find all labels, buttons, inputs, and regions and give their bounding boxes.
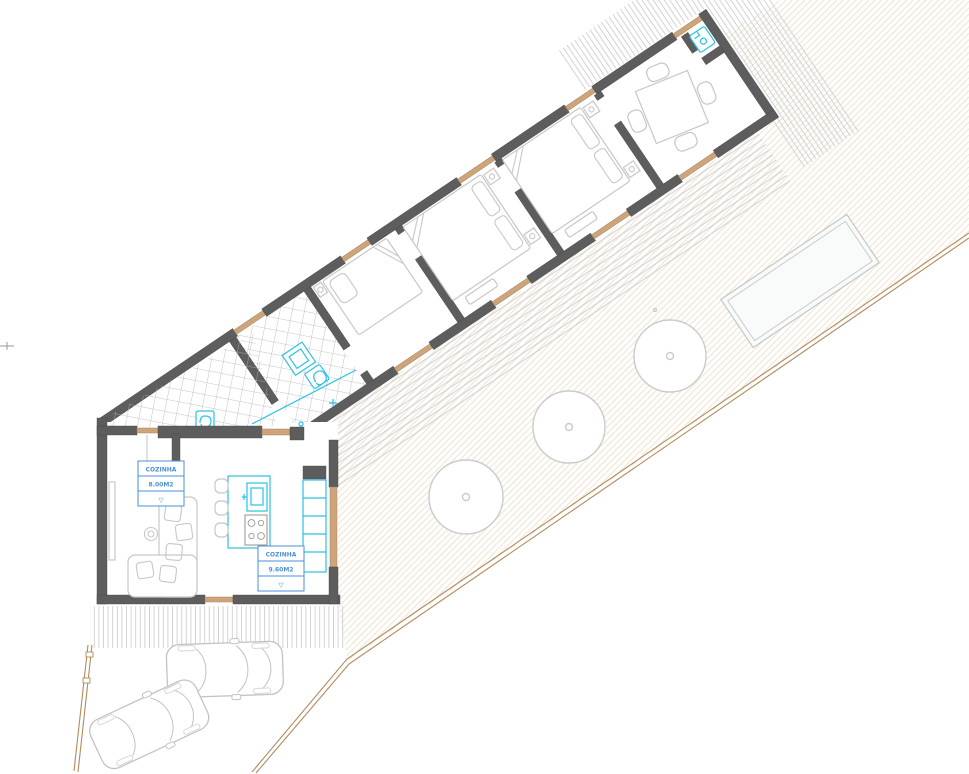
wedge-bathroom-tiles [110, 333, 277, 427]
room-name: COZINHA [266, 552, 297, 559]
tree-center [667, 353, 674, 360]
stool [215, 501, 228, 515]
entry-threshold [262, 429, 290, 435]
area-label-2: COZINHA 9.60M2 ▽ [258, 546, 304, 591]
tv-bench [109, 482, 115, 560]
bottom-deck-steps [90, 606, 345, 648]
stool [215, 479, 228, 493]
small-dot [654, 309, 657, 312]
room-name: COZINHA [146, 467, 177, 474]
tree-center [463, 494, 470, 501]
level-symbol: ▽ [279, 581, 284, 589]
door-threshold [137, 428, 158, 433]
area-label-1: COZINHA 8.00M2 ▽ [138, 461, 184, 506]
boundary-gate-tick [86, 652, 93, 657]
room-area: 8.00M2 [149, 482, 174, 489]
tree-center [566, 424, 573, 431]
door-threshold [205, 597, 233, 602]
parked-cars [84, 637, 284, 774]
kitchen-island [215, 476, 270, 548]
dimension-tick [0, 342, 14, 350]
island-sink [247, 483, 267, 511]
boundary-gate-tick [83, 678, 90, 683]
stool [215, 523, 228, 537]
level-symbol: ▽ [159, 496, 164, 504]
car [84, 672, 215, 774]
cooktop [245, 515, 267, 545]
room-area: 9.60M2 [269, 567, 294, 574]
window-threshold [330, 487, 337, 567]
kitchen-cabinets [303, 466, 326, 572]
floorplan-canvas: COZINHA 8.00M2 ▽ COZINHA 9.60M2 ▽ [0, 0, 969, 774]
